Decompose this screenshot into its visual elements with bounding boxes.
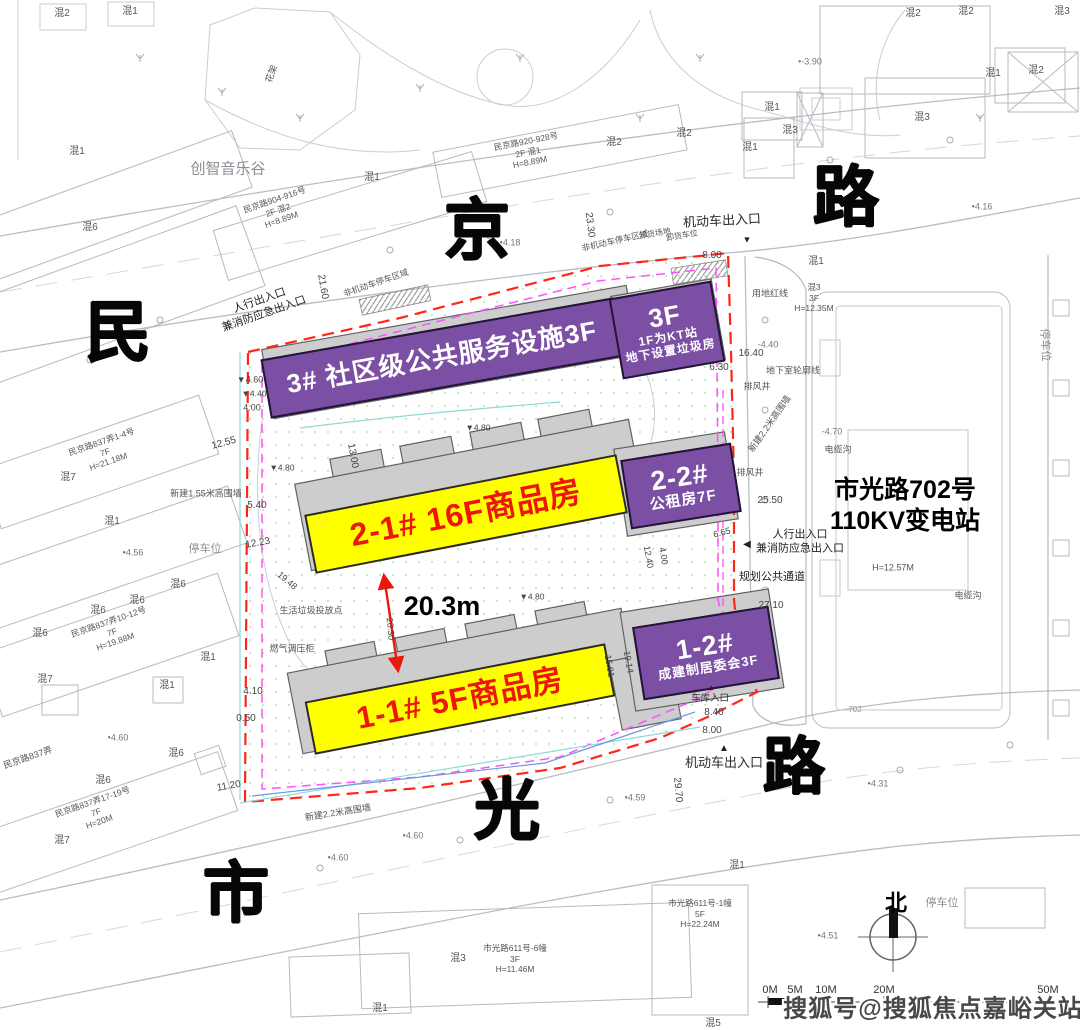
watermark-layer: 搜狐号@搜狐焦点嘉峪关站 xyxy=(0,0,1080,1030)
site-plan: 民京路市光路 3# 社区级公共服务设施3F3F1F为KT站地下设置垃圾房2-1#… xyxy=(0,0,1080,1030)
watermark-text: 搜狐号@搜狐焦点嘉峪关站 xyxy=(783,989,1080,1024)
